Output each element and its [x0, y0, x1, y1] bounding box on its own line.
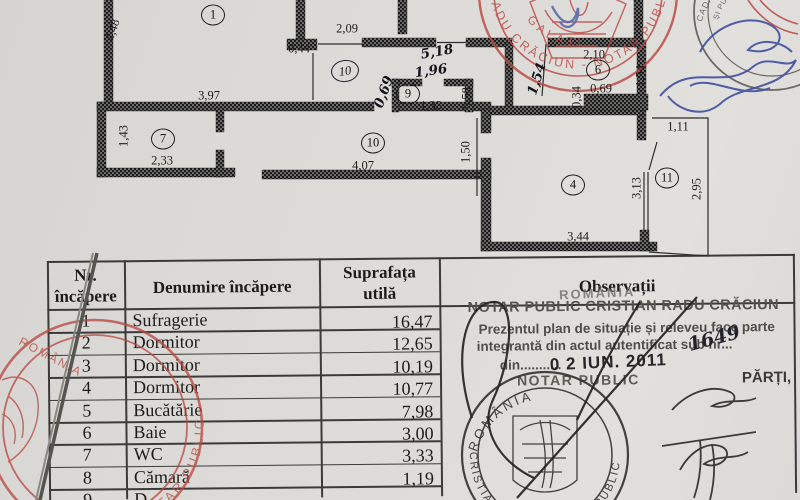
plan-dimension-label: 0,34	[570, 86, 585, 108]
plan-dimension-label: 1,33	[420, 99, 442, 114]
plan-room-number: 1	[201, 5, 225, 26]
plan-dimension-label: 0,44	[288, 42, 310, 57]
scanned-document-page: Nr. încăpere Denumire încăpere Suprafața…	[0, 0, 800, 500]
plan-dimension-label: 1,43	[117, 125, 132, 147]
plan-dimension-label: 3,13	[630, 177, 645, 199]
plan-dimension-label: 1,54	[524, 61, 549, 97]
plan-room-number: 4	[561, 175, 585, 196]
plan-dimension-label: 1,11	[667, 120, 688, 135]
plan-dimension-label: 1,54	[634, 65, 649, 87]
plan-dimension-label: 0,69	[371, 74, 397, 110]
plan-dimension-label: 1,96	[414, 61, 449, 81]
plan-room-number: 10	[361, 133, 385, 154]
plan-dimension-label: 1,50	[459, 141, 474, 163]
plan-dimension-label: 4,07	[352, 159, 374, 174]
plan-dimension-label: 3,97	[198, 89, 220, 104]
plan-room-number: 9	[396, 84, 420, 105]
plan-dimension-label: 0,58	[460, 87, 475, 109]
plan-dimension-label: 3,44	[567, 230, 589, 245]
plan-dimension-label: 0,69	[590, 82, 612, 97]
plan-room-number: 11	[655, 168, 679, 189]
plan-room-number: 6	[586, 60, 610, 81]
plan-dimension-label: 2,09	[336, 22, 358, 37]
plan-room-number: 10	[330, 58, 361, 84]
plan-dimension-label: 2,95	[690, 178, 705, 200]
plan-room-number: 7	[151, 129, 175, 150]
plan-dimension-label: 5,18	[419, 41, 454, 62]
plan-dimension-label: 2,33	[151, 154, 173, 169]
plan-dimension-label: 4,48	[102, 17, 123, 42]
floor-plan-labels: 4,482,090,445,181,962,101,541,540,690,34…	[0, 0, 800, 500]
